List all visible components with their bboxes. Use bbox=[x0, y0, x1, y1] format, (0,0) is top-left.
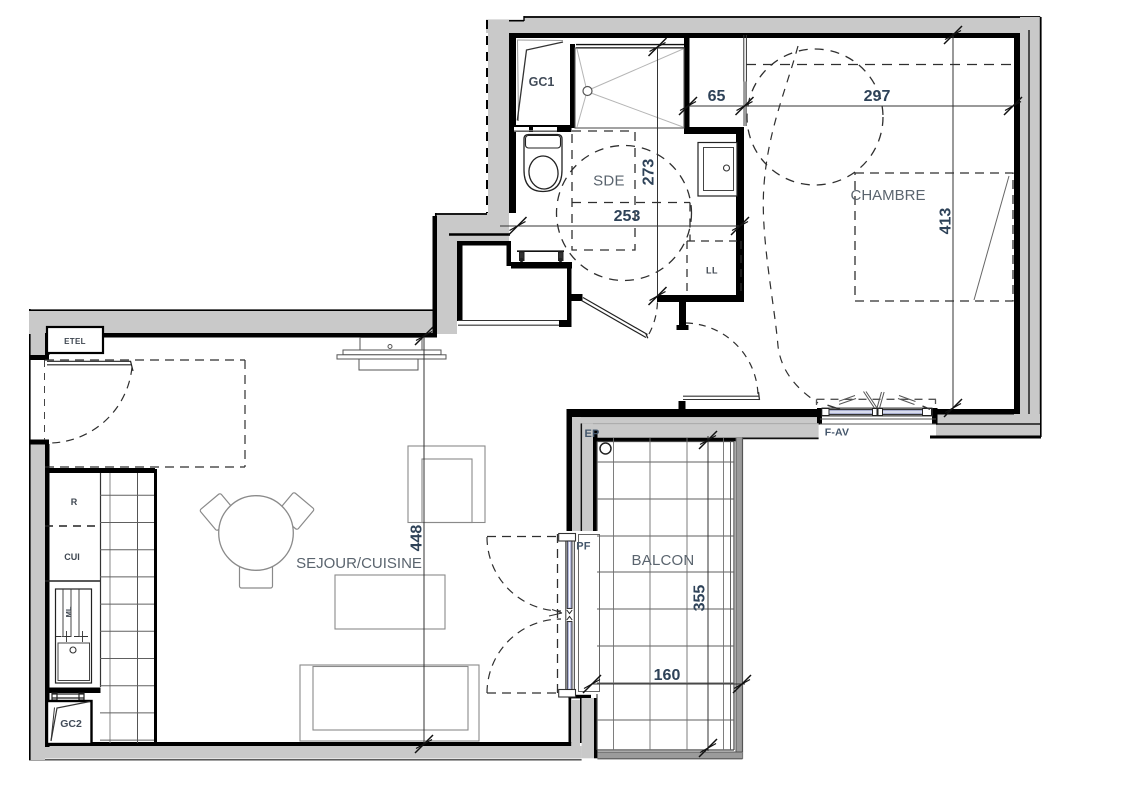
svg-text:CUI: CUI bbox=[64, 552, 80, 562]
svg-text:65: 65 bbox=[708, 88, 726, 105]
svg-text:253: 253 bbox=[614, 208, 641, 225]
svg-text:EP: EP bbox=[584, 428, 599, 440]
svg-text:ETEL: ETEL bbox=[64, 337, 86, 346]
svg-text:SDE: SDE bbox=[593, 173, 625, 190]
svg-text:SEJOUR/CUISINE: SEJOUR/CUISINE bbox=[296, 555, 422, 572]
svg-text:273: 273 bbox=[641, 159, 658, 186]
svg-text:413: 413 bbox=[938, 208, 955, 235]
svg-text:LL: LL bbox=[706, 266, 718, 276]
svg-text:GC1: GC1 bbox=[529, 75, 555, 89]
svg-text:355: 355 bbox=[692, 585, 709, 612]
svg-text:GC2: GC2 bbox=[60, 718, 82, 730]
svg-text:PF: PF bbox=[576, 541, 591, 553]
svg-text:ML: ML bbox=[64, 606, 73, 617]
svg-text:CHAMBRE: CHAMBRE bbox=[850, 187, 925, 204]
svg-text:BALCON: BALCON bbox=[632, 552, 695, 569]
svg-text:448: 448 bbox=[409, 525, 426, 552]
svg-text:160: 160 bbox=[654, 667, 681, 684]
svg-text:297: 297 bbox=[864, 88, 891, 105]
svg-text:R: R bbox=[71, 497, 78, 507]
svg-text:F-AV: F-AV bbox=[825, 427, 850, 439]
